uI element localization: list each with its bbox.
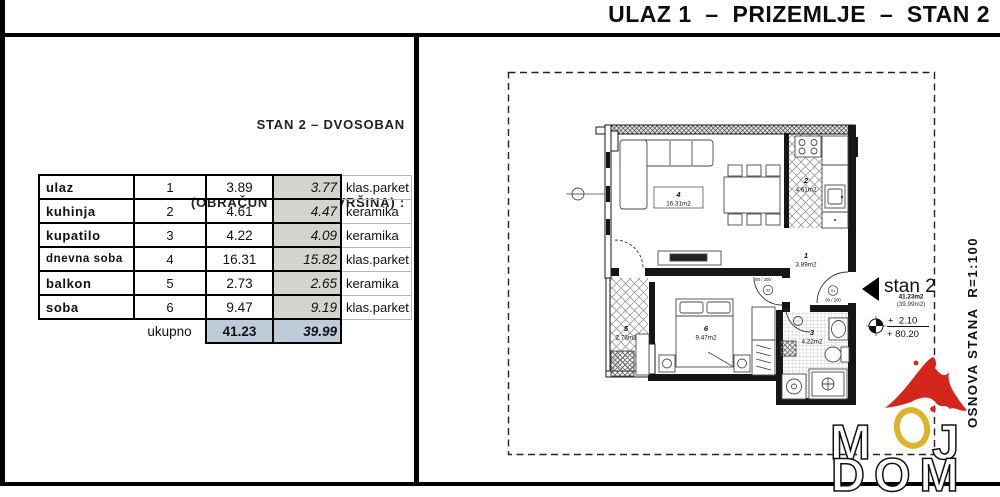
elevation-marker: + 2.10 + 80.20: [866, 316, 929, 341]
terrace-door-arc: [615, 240, 643, 268]
section-marker: [566, 188, 605, 200]
room-area: 16.31m2: [666, 201, 691, 208]
elevation-relative: + 2.10: [888, 316, 917, 327]
living-bedroom-wall: [645, 268, 790, 276]
room-net-area-cell: 2.65: [273, 271, 341, 295]
room-floor-type-cell: klas.parket: [341, 295, 411, 319]
room-gross-area-cell: 2.73: [206, 271, 273, 295]
table-total-row: ukupno 41.23 39.99: [39, 319, 411, 343]
logo-roof-icon: [885, 357, 967, 411]
kitchen-divider-wall: [784, 133, 789, 228]
room-number-cell: 6: [134, 295, 206, 319]
room-net-area-cell: 3.77: [273, 175, 341, 199]
room-number: 1: [804, 251, 808, 260]
window-sash: [606, 152, 610, 168]
room-area: 2.73m2: [615, 335, 637, 342]
table-row: soba 6 9.47 9.19 klas.parket: [39, 295, 411, 319]
sheet-side-label: OSNOVA STANA R=1:100: [965, 237, 980, 428]
balcony-door-panel: [649, 282, 655, 344]
stan-annotation: stan 2 41.23m2 (39.99m2): [862, 276, 936, 308]
window-sash: [606, 186, 610, 202]
door-size: 80 / 200: [755, 277, 771, 282]
bathroom-top-wall: [810, 305, 848, 312]
dining-set: [724, 165, 780, 225]
benchmark-quadrant: [876, 319, 883, 326]
logo-gold-ring-icon: [893, 407, 931, 449]
total-net-cell: 39.99: [273, 319, 341, 343]
balcony-left-wall: [606, 278, 610, 376]
bedroom-left-wall: [649, 344, 655, 374]
toilet-bowl: [825, 347, 841, 362]
room-gross-area-cell: 16.31: [206, 247, 273, 271]
door-tag: 01: [831, 288, 836, 293]
wardrobe: [752, 307, 775, 375]
room-gross-area-cell: 3.89: [206, 175, 273, 199]
room-area: 9.47m2: [695, 335, 717, 342]
room-name-cell: dnevna soba: [39, 247, 134, 271]
door-annotations: 01 90 / 200 02 80 / 200: [755, 277, 841, 303]
room-area-table: ulaz 1 3.89 3.77 klas.parket kuhinja 2 4…: [38, 174, 412, 344]
room-number-cell: 4: [134, 247, 206, 271]
left-border-bar: [0, 0, 5, 486]
room-gross-area-cell: 4.61: [206, 199, 273, 223]
vent-shaft: [849, 137, 858, 157]
room-name-cell: kuhinja: [39, 199, 134, 223]
elevation-absolute: + 80.20: [887, 329, 919, 340]
page-title: ULAZ 1 – PRIZEMLJE – STAN 2: [608, 1, 990, 28]
total-label-cell: ukupno: [134, 319, 206, 343]
total-gross-cell: 41.23: [206, 319, 273, 343]
room-gross-area-cell: 4.22: [206, 223, 273, 247]
room-floor-type-cell: keramika: [341, 223, 411, 247]
room-number-cell: 1: [134, 175, 206, 199]
room-number-cell: 3: [134, 223, 206, 247]
shaft: [781, 341, 796, 356]
top-wall: [607, 125, 855, 134]
toilet-tank: [841, 347, 849, 362]
table-row: kuhinja 2 4.61 4.47 keramika: [39, 199, 411, 223]
window-sash: [606, 219, 610, 235]
room-number-cell: 5: [134, 271, 206, 295]
logo-dot: [914, 361, 919, 366]
room-net-area-cell: 15.82: [273, 247, 341, 271]
hall-bedroom-wall-a: [782, 268, 790, 278]
wall-stub: [611, 268, 619, 276]
stan-area: 41.23m2: [899, 294, 924, 301]
table-caption-line1: STAN 2 – DVOSOBAN: [145, 112, 405, 138]
table-row: dnevna soba 4 16.31 15.82 klas.parket: [39, 247, 411, 271]
door-size: 90 / 200: [825, 298, 841, 303]
room-floor-type-cell: keramika: [341, 271, 411, 295]
benchmark-quadrant: [869, 326, 876, 333]
room-net-area-cell: 4.47: [273, 199, 341, 223]
room-area: 4.22m2: [801, 339, 823, 346]
room-floor-type-cell: klas.parket: [341, 175, 411, 199]
empty-cell: [341, 319, 411, 343]
stove: [795, 136, 821, 157]
floorplan-drawing: 4 16.31m2 2 4.61m2 1 3.89m2 6 9.47m2 5 2…: [420, 37, 1000, 497]
floorplan-sheet: ULAZ 1 – PRIZEMLJE – STAN 2 STAN 2 – DVO…: [0, 0, 1000, 497]
room-floor-type-cell: keramika: [341, 199, 411, 223]
room-name-cell: kupatilo: [39, 223, 134, 247]
tv-dresser: [658, 251, 721, 265]
room-number: 4: [675, 190, 681, 199]
door-tag: 02: [766, 288, 771, 293]
table-row: ulaz 1 3.89 3.77 klas.parket: [39, 175, 411, 199]
room-net-area-cell: 9.19: [273, 295, 341, 319]
room-gross-area-cell: 9.47: [206, 295, 273, 319]
room-number: 2: [803, 176, 809, 185]
room-name-cell: balkon: [39, 271, 134, 295]
vertical-divider-line: [414, 33, 419, 486]
room-area: 4.61m2: [795, 187, 817, 194]
bed: [676, 299, 733, 367]
logo-word-dom: DOM: [831, 448, 968, 497]
room-area: 3.89m2: [795, 262, 817, 269]
stan-net-area: (39.99m2): [897, 301, 926, 308]
table-row: balkon 5 2.73 2.65 keramika: [39, 271, 411, 295]
room-name-cell: soba: [39, 295, 134, 319]
empty-cell: [39, 319, 134, 343]
room-floor-type-cell: klas.parket: [341, 247, 411, 271]
logo-dot: [930, 406, 936, 412]
washing-machine: [782, 374, 806, 399]
table-row: kupatilo 3 4.22 4.09 keramika: [39, 223, 411, 247]
room-name-cell: ulaz: [39, 175, 134, 199]
kitchen-counter: [822, 136, 848, 228]
room-net-area-cell: 4.09: [273, 223, 341, 247]
arrow-left-icon: [862, 277, 879, 301]
room-number-cell: 2: [134, 199, 206, 223]
